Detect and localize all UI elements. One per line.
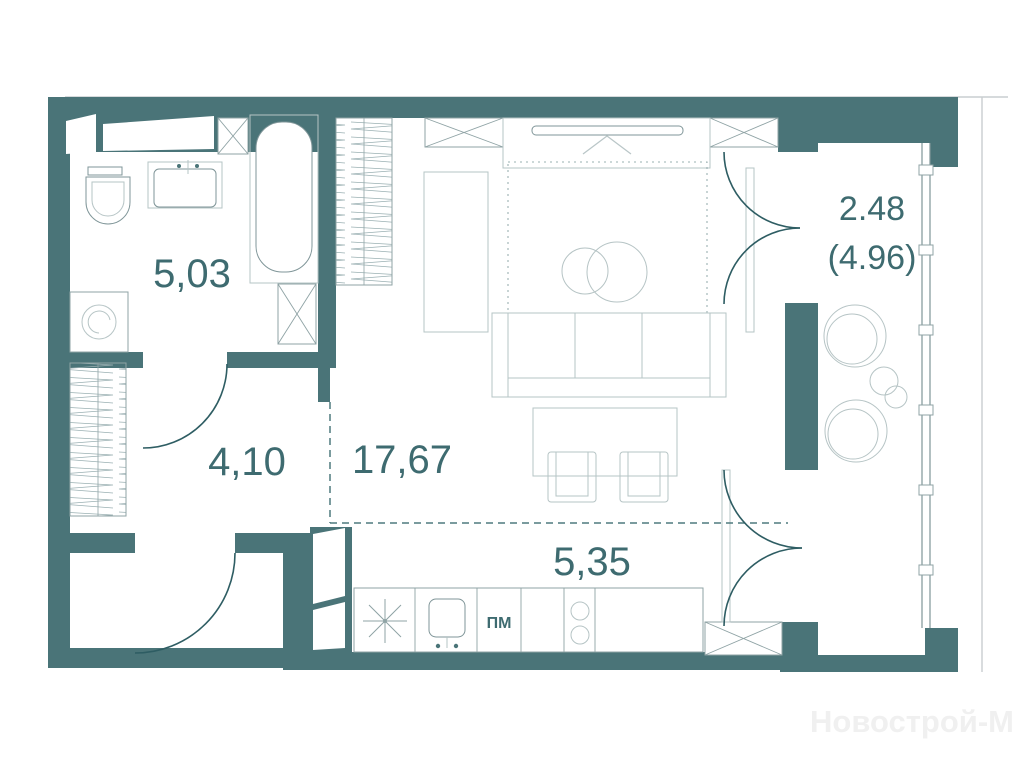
dining-table-icon <box>533 408 677 476</box>
dishwasher-label: ПМ <box>487 615 512 632</box>
wall-bathroom-right <box>318 97 336 368</box>
mullion <box>919 565 933 575</box>
hall-wardrobe-icon <box>70 363 126 516</box>
wall-vestibule-left <box>48 533 135 553</box>
coffee-tables-icon <box>562 242 647 302</box>
bathtub-icon <box>250 115 318 283</box>
wall-left <box>48 97 70 668</box>
chair-icon <box>548 452 596 502</box>
balcony-furniture-icon <box>824 305 907 462</box>
mullion <box>919 405 933 415</box>
wall-balcony-bottom <box>780 655 958 672</box>
shaft-bathroom-bottom <box>278 284 316 344</box>
mullion <box>919 245 933 255</box>
shaft-kitchen <box>705 622 782 655</box>
wall-hall-living-stub <box>318 368 330 402</box>
fridge-marker-icon <box>363 599 407 643</box>
mullion <box>919 325 933 335</box>
wall-bathroom-bottom-right <box>227 352 336 368</box>
developer-watermark: Новострой-М <box>810 704 1014 739</box>
living-area-label: 17,67 <box>352 438 452 482</box>
chair-icon <box>620 452 668 502</box>
shaft-bathroom-top <box>218 118 248 154</box>
room-hallway: 4,10 <box>70 363 286 653</box>
rug-outline <box>508 162 707 313</box>
wall-pillar-bottomright <box>925 628 958 658</box>
console-table-icon <box>424 172 488 332</box>
room-balcony: 2.48 (4.96) <box>724 143 933 628</box>
wall-entry-vertical <box>283 533 310 655</box>
living-wardrobe-icon <box>336 118 392 285</box>
mullion <box>919 485 933 495</box>
shaft-living-topright <box>710 118 778 147</box>
balcony-area-total-label: (4.96) <box>828 239 917 277</box>
french-door-bottom <box>724 470 802 626</box>
wall-pillar-topright <box>930 97 958 167</box>
balcony-area-label: 2.48 <box>839 190 905 228</box>
wall-top-living <box>336 97 785 118</box>
wall-vestibule-right-stub <box>235 533 283 553</box>
floor-plan: 5,03 4,10 <box>0 0 1024 768</box>
washing-machine-icon <box>70 292 128 352</box>
room-living: 17,67 <box>336 118 754 622</box>
bathroom-door-arc <box>143 364 227 448</box>
mullion <box>919 165 933 175</box>
wall-bottom-left <box>48 648 283 668</box>
niche-topwall-small <box>66 114 96 154</box>
wall-balcony-divider-mid <box>785 303 818 470</box>
faucet-dot <box>177 164 181 168</box>
entry-door-leaf-upper <box>313 528 345 604</box>
sofa-icon <box>492 313 726 397</box>
faucet-dot <box>195 164 199 168</box>
balcony-glazing <box>919 143 933 628</box>
floorplan-page: 5,03 4,10 <box>0 0 1024 768</box>
entrance-door-arc <box>135 553 235 653</box>
tv-unit-icon <box>503 118 710 168</box>
dining-set-icon <box>533 408 677 502</box>
kitchen-counter: ПМ <box>354 588 703 652</box>
entry-door-leaf-lower <box>313 602 345 650</box>
wall-balcony-door-top-hinge <box>778 118 818 152</box>
hallway-area-label: 4,10 <box>208 440 286 484</box>
kitchen-area-label: 5,35 <box>553 540 631 584</box>
sink-vanity-icon <box>148 160 222 208</box>
shaft-living-topleft <box>425 118 503 147</box>
toilet-icon <box>86 167 130 224</box>
bathroom-area-label: 5,03 <box>153 252 231 296</box>
french-door-top <box>724 152 800 304</box>
wall-balcony-door-bottom-block <box>782 622 818 655</box>
